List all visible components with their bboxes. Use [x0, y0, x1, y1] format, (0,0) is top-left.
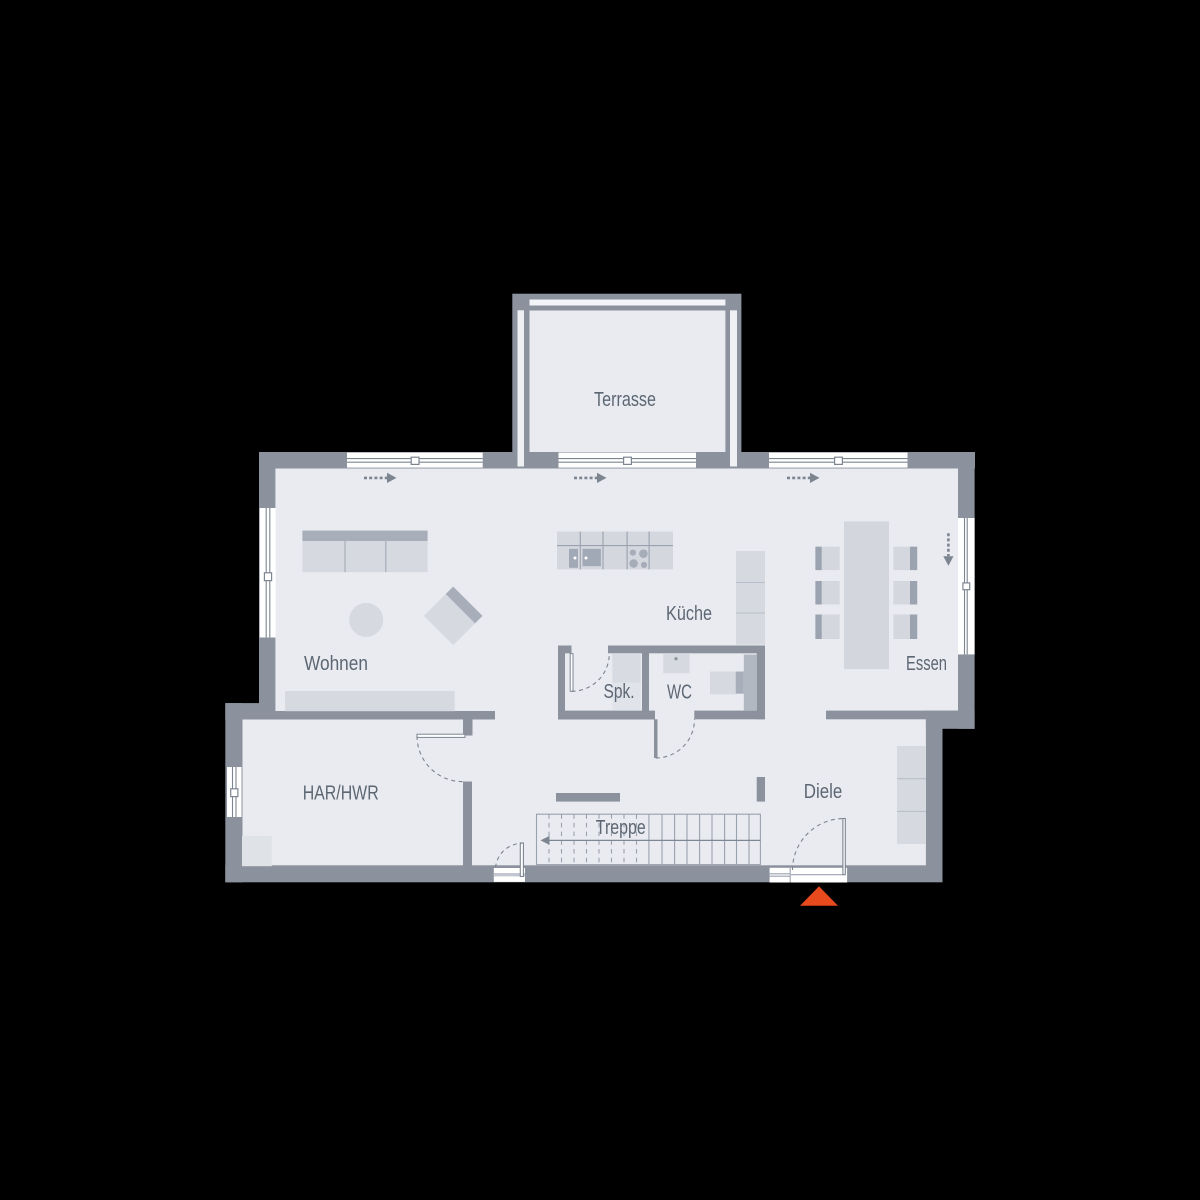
svg-text:Essen: Essen	[906, 653, 947, 675]
svg-text:Terrasse: Terrasse	[594, 389, 656, 411]
svg-text:Treppe: Treppe	[596, 817, 646, 839]
svg-text:Wohnen: Wohnen	[304, 653, 368, 675]
svg-text:WC: WC	[667, 682, 692, 704]
svg-text:Küche: Küche	[666, 603, 712, 625]
svg-text:Diele: Diele	[804, 781, 843, 803]
svg-text:Spk.: Spk.	[604, 681, 635, 703]
svg-text:HAR/HWR: HAR/HWR	[303, 783, 379, 805]
